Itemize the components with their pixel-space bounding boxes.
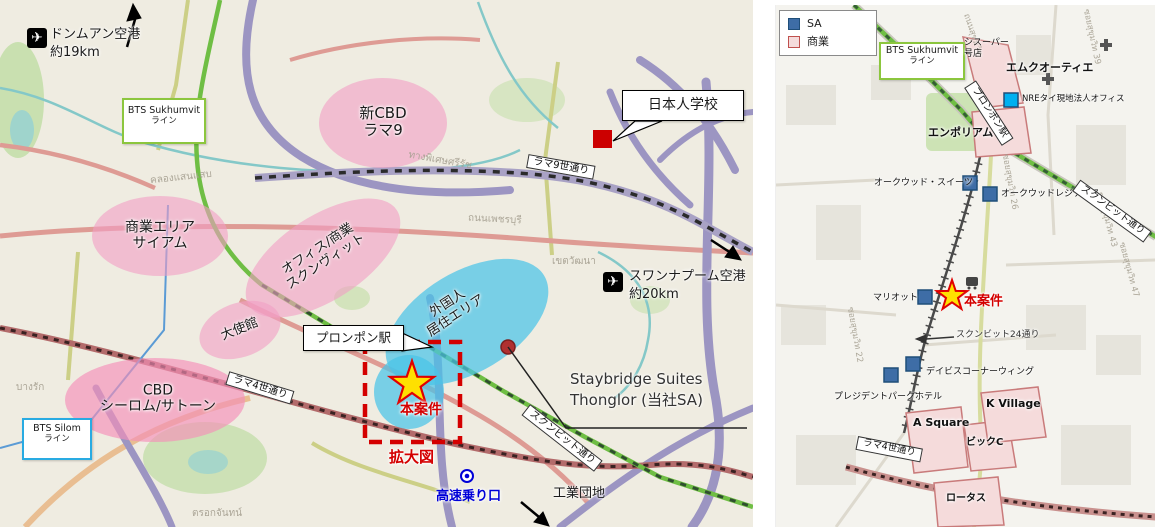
- davis-marker: [906, 357, 920, 371]
- soi24-road-label: スクンビット24通り: [956, 330, 1039, 340]
- don-mueang-distance: 約19km: [50, 46, 100, 61]
- airplane-icon: ✈: [27, 28, 47, 48]
- k-village-label: K Village: [986, 398, 1041, 410]
- president-park-hotel-label: プレジデントパークホテル: [834, 392, 942, 402]
- project-label: 本案件: [400, 403, 442, 419]
- airplane-icon: ✈: [603, 272, 623, 292]
- marriott-marker: [918, 290, 932, 304]
- legend-commercial-row: 商業: [788, 33, 868, 51]
- japanese-school-marker: [593, 130, 612, 148]
- legend-sa-row: SA: [788, 15, 868, 33]
- bts-sukhumvit-line-word: ライン: [881, 57, 963, 67]
- davis-corner-wing-label: デイビスコーナーウィング: [926, 367, 1034, 377]
- japanese-school-callout-pointer: [613, 121, 662, 141]
- a-square-label: A Square: [913, 417, 969, 429]
- emquartier-label: エムクオーティエ: [1006, 62, 1093, 74]
- bts-sukhumvit-box: BTS Sukhumvit ライン: [122, 98, 206, 144]
- industrial-park-arrow: [521, 502, 549, 526]
- k-village-zone: [981, 387, 1046, 443]
- oakwood-suites-label: オークウッド・スイーツ: [874, 178, 973, 188]
- don-mueang-airport-label: ドンムアン空港: [50, 28, 140, 43]
- bts-sukhumvit-line-word: ライン: [124, 117, 204, 127]
- detail-map-graphics: [776, 5, 1155, 527]
- phrom-phong-callout: プロンポン駅: [303, 325, 404, 351]
- overview-map-graphics: [0, 0, 753, 527]
- staybridge-label-line2: Thonglor (当社SA): [570, 392, 703, 409]
- legend: SA 商業: [779, 10, 877, 56]
- suvarnabhumi-distance: 約20km: [629, 288, 679, 303]
- commercial-legend-swatch: [788, 36, 800, 48]
- industrial-park-label: 工業団地: [553, 487, 605, 502]
- president-park-marker: [884, 368, 898, 382]
- project-star-icon: [937, 280, 967, 309]
- project-label: 本案件: [964, 295, 1003, 310]
- transit-station-icon: [966, 277, 978, 290]
- commercial-legend-label: 商業: [807, 36, 829, 48]
- bts-sukhumvit-box: BTS Sukhumvit ライン: [879, 42, 965, 80]
- detail-map: ซอยสุขุมวิท 39 ถนนสุขุมวิท ซอยสุขุมวิท 2…: [775, 5, 1155, 527]
- staybridge-label-line1: Staybridge Suites: [570, 371, 703, 388]
- basemap-label: บางรัก: [16, 382, 44, 393]
- super-label-line2: 号店: [964, 49, 982, 59]
- sa-legend-label: SA: [807, 18, 822, 30]
- bts-silom-box: BTS Silom ライン: [22, 418, 92, 460]
- oakwood-residence-marker: [983, 187, 997, 201]
- sa-legend-swatch: [788, 18, 800, 30]
- marriott-label: マリオット: [873, 293, 918, 303]
- new-cbd-label: 新CBD ラマ9: [359, 105, 406, 139]
- siam-label: 商業エリア サイアム: [125, 220, 195, 251]
- lotus-label: ロータス: [946, 493, 986, 504]
- enlarged-view-label: 拡大図: [389, 449, 434, 466]
- emporium-label: エンポリアム: [928, 127, 993, 139]
- bangkok-location-maps: คลองแสนแสบ ทางพิเศษศรีรัช ถนนเพชรบุรี เข…: [0, 0, 1155, 527]
- basemap-label: เขตวัฒนา: [552, 256, 596, 267]
- bts-silom-line-word: ライン: [24, 435, 90, 445]
- nre-office-label: NREタイ現地法人オフィス: [1022, 95, 1124, 105]
- japanese-school-callout: 日本人学校: [622, 90, 744, 121]
- overview-map: คลองแสนแสบ ทางพิเศษศรีรัช ถนนเพชรบุรี เข…: [0, 0, 753, 527]
- cbd-silom-label: CBD シーロム/サトーン: [100, 383, 216, 414]
- basemap-label: ตรอกจันทน์: [192, 508, 242, 519]
- expressway-entrance-icon: [461, 470, 473, 482]
- big-c-label: ビックC: [966, 437, 1003, 448]
- nre-office-marker: [1004, 93, 1018, 107]
- super-label-line1: シスーパー: [964, 38, 1009, 48]
- expressway-entrance-label: 高速乗り口: [436, 490, 501, 505]
- suvarnabhumi-airport-label: スワンナプーム空港: [629, 270, 746, 285]
